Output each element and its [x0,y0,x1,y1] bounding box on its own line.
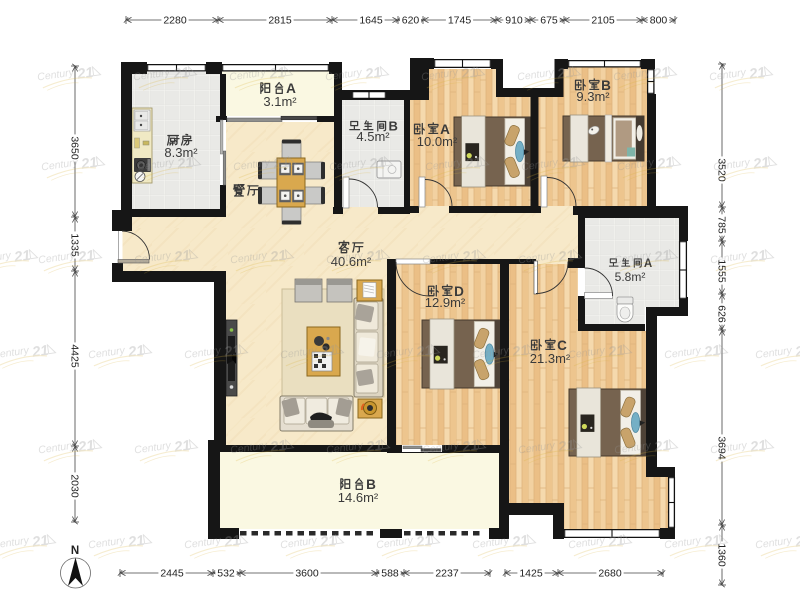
svg-text:9.3m²: 9.3m² [576,89,610,104]
svg-text:4.5m²: 4.5m² [356,129,390,144]
svg-text:3600: 3600 [295,568,319,580]
svg-text:2237: 2237 [435,568,459,580]
svg-text:2030: 2030 [69,474,81,498]
svg-text:620: 620 [402,15,420,27]
svg-text:800: 800 [650,15,668,27]
svg-text:3.1m²: 3.1m² [263,94,297,109]
svg-text:N: N [71,545,79,557]
svg-text:10.0m²: 10.0m² [417,134,458,149]
svg-text:675: 675 [540,15,558,27]
svg-text:1645: 1645 [359,15,383,27]
svg-text:2445: 2445 [160,568,184,580]
svg-text:5.8m²: 5.8m² [615,270,646,284]
svg-text:B: B [389,119,398,134]
svg-text:14.6m²: 14.6m² [338,490,379,505]
svg-text:2280: 2280 [163,15,187,27]
svg-text:626: 626 [716,305,728,323]
svg-text:1745: 1745 [448,15,472,27]
svg-text:910: 910 [505,15,523,27]
svg-text:12.9m²: 12.9m² [425,295,466,310]
svg-text:1425: 1425 [519,568,543,580]
svg-text:785: 785 [716,216,728,234]
svg-text:2105: 2105 [591,15,615,27]
svg-text:21.3m²: 21.3m² [530,351,571,366]
svg-text:2680: 2680 [598,568,622,580]
svg-text:532: 532 [217,568,235,580]
svg-text:4425: 4425 [69,344,81,368]
svg-text:588: 588 [381,568,399,580]
svg-text:2815: 2815 [268,15,292,27]
